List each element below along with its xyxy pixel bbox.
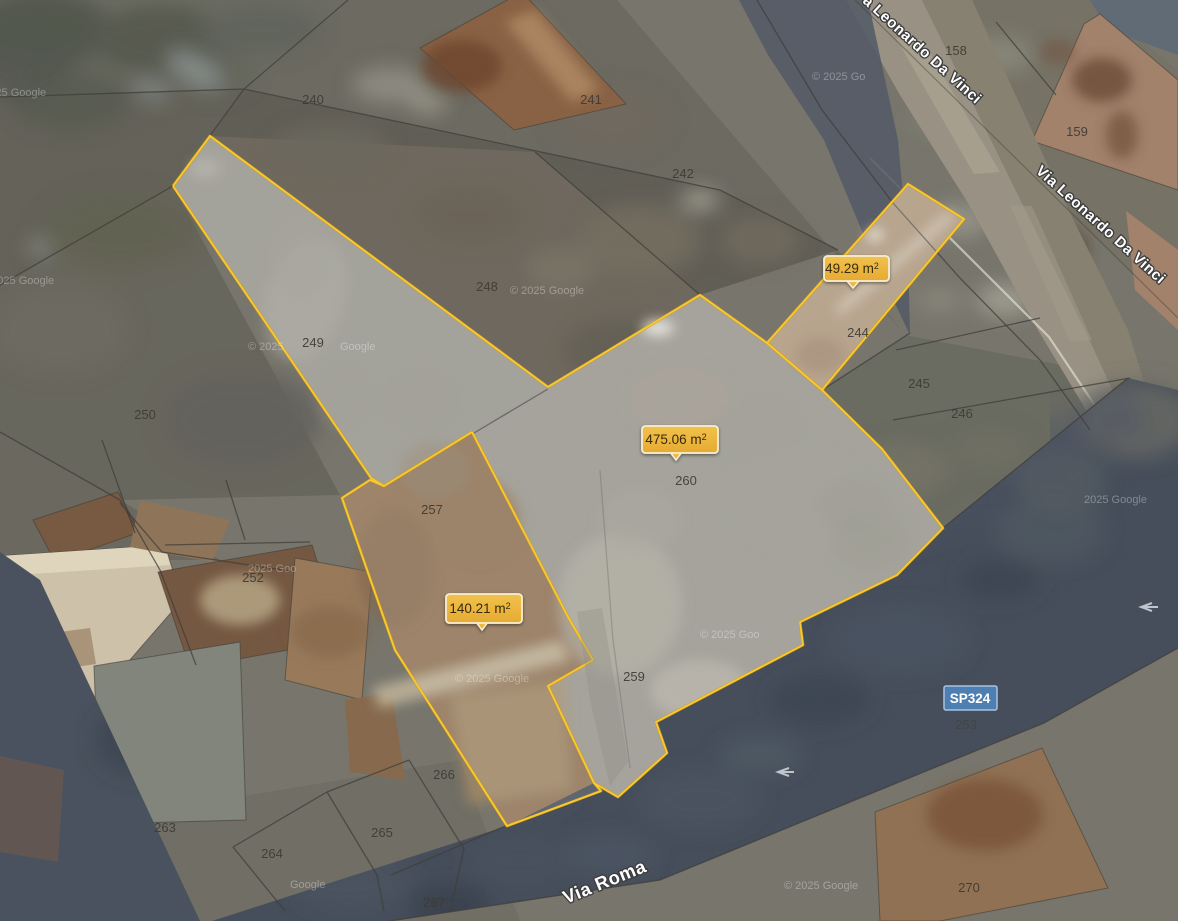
svg-text:© 2025: © 2025 xyxy=(248,341,284,353)
svg-text:240: 240 xyxy=(302,92,324,107)
svg-text:Google: Google xyxy=(290,879,325,891)
svg-text:© 2025 Google: © 2025 Google xyxy=(510,285,584,297)
svg-text:270: 270 xyxy=(958,880,980,895)
svg-text:253: 253 xyxy=(955,717,977,732)
svg-text:245: 245 xyxy=(908,376,930,391)
svg-text:248: 248 xyxy=(476,279,498,294)
svg-text:SP324: SP324 xyxy=(950,691,991,706)
svg-text:266: 266 xyxy=(433,767,455,782)
svg-text:159: 159 xyxy=(1066,124,1088,139)
svg-text:242: 242 xyxy=(672,166,694,181)
svg-text:© 2025 Google: © 2025 Google xyxy=(784,880,858,892)
svg-text:246: 246 xyxy=(951,406,973,421)
svg-text:267: 267 xyxy=(423,895,445,910)
svg-text:49.29 m2: 49.29 m2 xyxy=(825,261,879,276)
svg-text:263: 263 xyxy=(154,820,176,835)
svg-text:250: 250 xyxy=(134,407,156,422)
svg-text:140.21 m2: 140.21 m2 xyxy=(449,601,510,616)
svg-text:249: 249 xyxy=(302,335,324,350)
svg-text:Google: Google xyxy=(340,341,375,353)
svg-text:265: 265 xyxy=(371,825,393,840)
svg-text:© 2025 Go: © 2025 Go xyxy=(812,71,865,83)
svg-text:475.06 m2: 475.06 m2 xyxy=(645,432,706,447)
svg-text:© 2025 Google: © 2025 Google xyxy=(0,87,46,99)
svg-text:2025 Goo: 2025 Goo xyxy=(248,563,296,575)
svg-text:158: 158 xyxy=(945,43,967,58)
svg-text:© 2025 Goo: © 2025 Goo xyxy=(700,629,759,641)
svg-text:260: 260 xyxy=(675,473,697,488)
svg-text:© 2025 Google: © 2025 Google xyxy=(0,275,54,287)
svg-text:© 2025 Google: © 2025 Google xyxy=(455,673,529,685)
svg-text:257: 257 xyxy=(421,502,443,517)
svg-text:244: 244 xyxy=(847,325,869,340)
svg-text:264: 264 xyxy=(261,846,283,861)
svg-text:259: 259 xyxy=(623,669,645,684)
svg-text:241: 241 xyxy=(580,92,602,107)
svg-text:2025 Google: 2025 Google xyxy=(1084,494,1147,506)
